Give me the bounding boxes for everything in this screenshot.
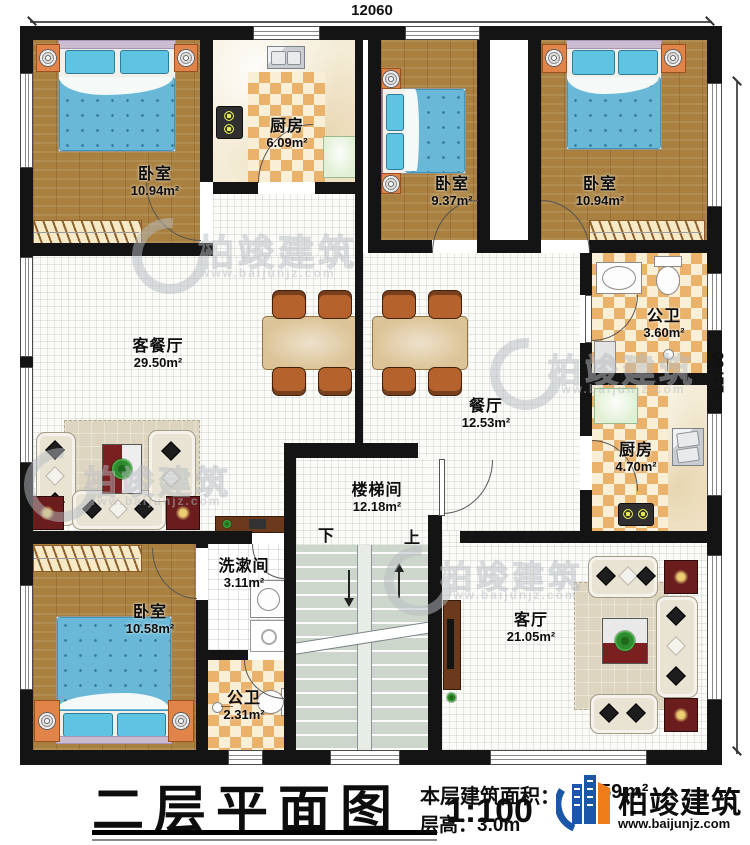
wall <box>477 240 541 253</box>
sofa-cushion <box>161 441 181 461</box>
window <box>707 83 722 207</box>
dining-chair <box>428 367 462 396</box>
toilet-icon <box>656 266 680 295</box>
sofa-cushion <box>134 499 154 519</box>
lamp-icon <box>382 70 400 88</box>
window <box>20 257 33 357</box>
dimension-right: 12760 <box>711 339 728 407</box>
ornament-icon <box>39 505 55 521</box>
wardrobe-rail <box>590 232 702 233</box>
room-label-living: 客厅21.05m² <box>481 612 581 644</box>
nightstand <box>661 44 686 73</box>
sink-basin <box>271 51 286 65</box>
window <box>707 413 722 496</box>
room-label-stairwell: 楼梯间12.18m² <box>327 482 427 514</box>
stair-direction-line <box>398 572 400 598</box>
room-label-bath-top: 公卫3.60m² <box>614 308 714 340</box>
ornament-icon <box>175 505 191 521</box>
wardrobe-rail <box>34 558 139 559</box>
double-bed <box>382 88 466 174</box>
sofa-cushion <box>666 636 686 656</box>
bed-pillow <box>65 50 115 74</box>
wall <box>368 240 432 253</box>
floor-area-label: 本层建筑面积： <box>420 780 560 809</box>
room-label-kitchen-top: 厨房6.09m² <box>237 118 337 150</box>
washing-machine <box>250 620 286 652</box>
title-underline-thin <box>92 839 437 841</box>
plant-icon <box>615 631 635 651</box>
sofa-cushion <box>82 499 102 519</box>
side-table <box>166 496 200 530</box>
burner-icon <box>224 124 234 134</box>
dimension-line <box>736 82 738 754</box>
stove <box>618 503 654 526</box>
side-table <box>664 560 698 594</box>
faucet-stem <box>667 358 668 371</box>
wall <box>428 515 442 750</box>
armchair <box>148 430 196 502</box>
plant-icon <box>447 693 456 702</box>
arrow-up-icon <box>394 563 404 572</box>
room-label-living-dining: 客餐厅29.50m² <box>108 338 208 370</box>
window <box>20 585 33 690</box>
sofa <box>656 596 698 698</box>
sofa-cushion <box>618 566 638 586</box>
nightstand <box>168 700 194 742</box>
living-dining-floor-ext <box>213 194 355 256</box>
sofa <box>588 556 658 598</box>
plant-icon <box>223 520 231 528</box>
coffee-table <box>602 618 648 664</box>
dining-chair <box>428 290 462 319</box>
nightstand <box>381 68 401 89</box>
lamp-icon <box>177 49 195 67</box>
wall <box>589 240 707 253</box>
faucet-icon <box>663 349 674 360</box>
double-bed <box>58 40 176 152</box>
lamp-icon <box>545 49 563 67</box>
dining-chair <box>318 290 352 319</box>
sofa-cushion <box>596 566 616 586</box>
room-label-bedroom-tr: 卧室10.94m² <box>550 176 650 208</box>
brand-logo-icon <box>556 770 612 834</box>
wall <box>477 40 490 240</box>
dining-chair <box>272 367 306 396</box>
sofa-cushion <box>626 703 646 723</box>
window <box>490 750 647 765</box>
stairs-down-label: 下 <box>318 522 334 546</box>
ornament-icon <box>673 707 689 723</box>
stair-stringer <box>357 545 372 750</box>
bed-pillow <box>572 50 615 75</box>
wall <box>528 40 541 240</box>
window <box>330 750 400 765</box>
washer-door-icon <box>261 629 277 645</box>
sink-icon <box>602 266 636 290</box>
arrow-down-icon <box>344 598 354 607</box>
burner-icon <box>638 509 648 519</box>
laptop-icon <box>249 519 266 529</box>
bed-pillow <box>120 50 169 74</box>
wardrobe-rail <box>34 232 139 233</box>
dining-chair <box>272 290 306 319</box>
room-label-bedroom-bl: 卧室10.58m² <box>100 604 200 636</box>
fridge <box>594 388 638 424</box>
lamp-icon <box>172 712 190 730</box>
tv-icon <box>447 619 454 669</box>
floor-plan-page: 卧室10.94m² 厨房6.09m² 卧室9.37m² 卧室10.94m² 公卫… <box>0 0 750 845</box>
wall <box>580 373 707 385</box>
room-label-bath-bottom: 公卫2.31m² <box>196 690 292 722</box>
dining-chair <box>382 367 416 396</box>
bed-pillow <box>117 713 166 737</box>
room-label-kitchen-right: 厨房4.70m² <box>586 442 686 474</box>
sofa-cushion <box>45 440 65 460</box>
nightstand <box>381 173 401 194</box>
sofa-cushion <box>666 666 686 686</box>
wall <box>213 182 258 194</box>
lamp-icon <box>382 175 400 193</box>
stair-direction-line <box>348 570 350 598</box>
coffee-table <box>102 444 142 494</box>
wall <box>580 253 592 295</box>
wall <box>200 40 213 182</box>
door-leaf <box>439 459 445 516</box>
nightstand <box>174 44 198 72</box>
sofa-cushion <box>45 466 65 486</box>
wall <box>20 26 722 40</box>
sofa-cushion <box>666 606 686 626</box>
bed-headboard <box>566 40 662 49</box>
tv-cabinet <box>443 600 461 690</box>
room-label-dining: 餐厅12.53m² <box>436 398 536 430</box>
bathroom-counter <box>596 262 642 294</box>
nightstand <box>36 44 60 72</box>
sink-icon <box>257 588 280 611</box>
sofa-cushion <box>161 468 181 488</box>
wall <box>20 243 213 256</box>
lamp-icon <box>38 712 56 730</box>
lamp-icon <box>664 49 682 67</box>
double-bed <box>566 40 662 150</box>
passage-floor <box>442 531 460 543</box>
stairs-up-label: 上 <box>404 524 420 548</box>
bed-headboard <box>58 40 176 49</box>
dining-chair <box>382 290 416 319</box>
door-leaf <box>585 295 592 343</box>
ornament-icon <box>673 569 689 585</box>
nightstand <box>542 44 567 73</box>
side-table <box>30 496 64 530</box>
window <box>20 73 33 168</box>
side-table <box>664 698 698 732</box>
shower-panel <box>594 341 616 377</box>
dining-chair <box>318 367 352 396</box>
bed-pillow <box>386 133 404 170</box>
lamp-icon <box>39 49 57 67</box>
dining-table <box>372 316 468 370</box>
wall <box>460 531 707 543</box>
wall <box>196 650 248 660</box>
sofa-cushion <box>108 499 128 519</box>
wall <box>355 40 363 458</box>
burner-icon <box>623 509 633 519</box>
brand-url: www.baijunjz.com <box>618 816 730 831</box>
wall <box>368 40 381 253</box>
window <box>228 750 263 765</box>
bed-pillow <box>63 713 113 737</box>
wall <box>580 343 592 436</box>
kitchen-sink <box>267 46 305 69</box>
room-label-bedroom-tl: 卧室10.94m² <box>105 166 205 198</box>
wardrobe <box>33 545 142 572</box>
floor-height-label: 层高：3.0m <box>420 810 520 837</box>
nightstand <box>34 700 60 742</box>
dining-table <box>262 316 358 370</box>
nook-floor <box>490 40 528 240</box>
room-label-bedroom-tm: 卧室9.37m² <box>402 176 502 208</box>
wall <box>284 443 418 458</box>
plant-icon <box>112 459 132 479</box>
bed-sheet <box>405 89 419 171</box>
sink-basin <box>287 51 301 65</box>
bed-pillow <box>386 94 404 131</box>
bed-headboard <box>56 736 172 744</box>
window <box>405 26 480 40</box>
window <box>253 26 320 40</box>
wall <box>20 531 252 544</box>
wall <box>315 182 355 194</box>
dimension-line <box>30 21 712 23</box>
sofa <box>590 694 658 734</box>
sofa-cushion <box>599 703 619 723</box>
window <box>20 367 33 463</box>
room-label-washroom: 洗漱间3.11m² <box>196 558 292 590</box>
dimension-top: 12060 <box>332 2 412 19</box>
sofa-cushion <box>636 566 656 586</box>
title-underline <box>92 830 437 835</box>
bed-pillow <box>618 50 658 75</box>
burner-icon <box>224 111 234 121</box>
window <box>707 555 722 700</box>
